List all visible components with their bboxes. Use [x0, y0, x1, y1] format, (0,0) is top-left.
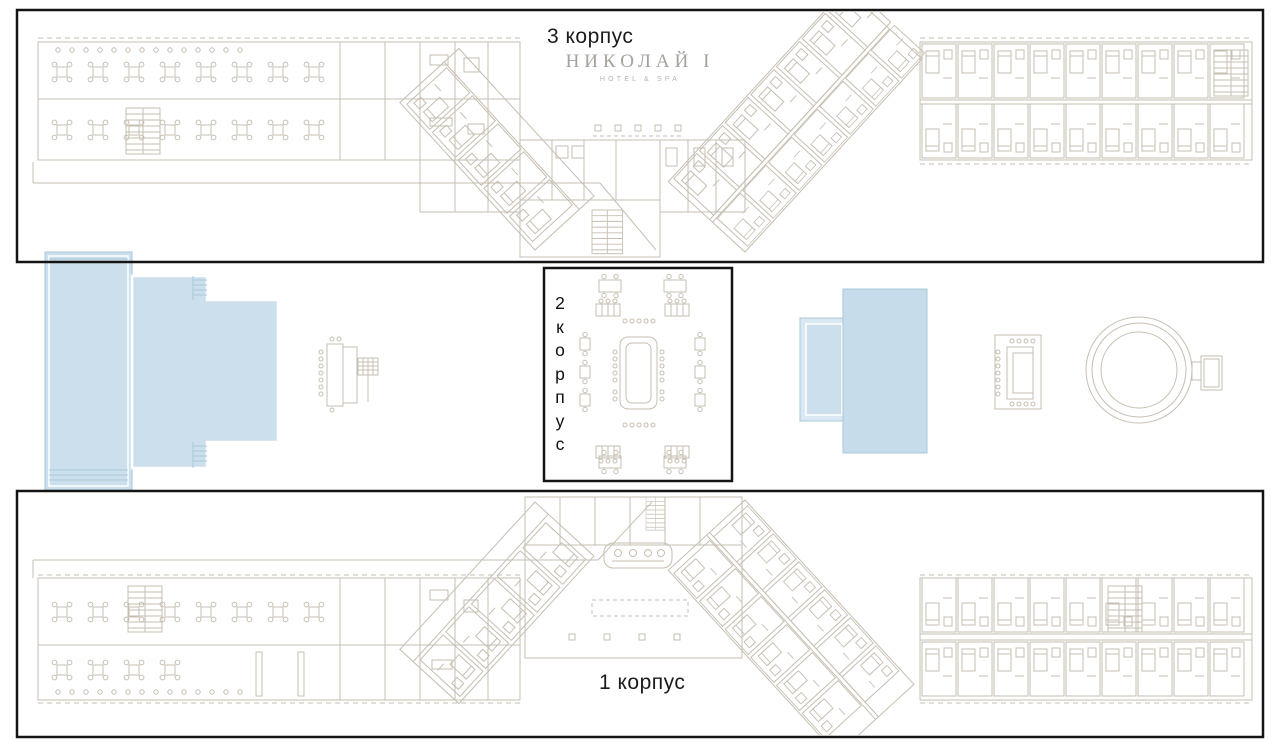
- hotel-logo-name: НИКОЛАЙ I: [540, 51, 740, 73]
- pool-lap: [45, 252, 132, 490]
- building-3-label: 3 корпус: [547, 25, 633, 49]
- building-2-plan: [580, 274, 705, 473]
- hotel-logo: НИКОЛАЙ I HOTEL & SPA: [540, 51, 740, 83]
- pool-main-left: [132, 276, 278, 468]
- building-1-plan: [33, 497, 1252, 745]
- pool-bar-right: [995, 335, 1041, 409]
- building-3-plan: [33, 0, 1252, 257]
- building-2-label: 2 к о р п у с: [548, 292, 572, 457]
- hotel-logo-tagline: HOTEL & SPA: [540, 76, 740, 83]
- site-plan-drawing: [0, 0, 1280, 745]
- pool-bar-left: [319, 337, 378, 412]
- building-3-frame: [17, 10, 1263, 262]
- round-pool: [1086, 317, 1222, 423]
- building-1-label: 1 корпус: [599, 671, 685, 695]
- building-2-frame: [544, 268, 732, 481]
- pool-main-right: [800, 289, 927, 453]
- site-plan-page: 3 корпус НИКОЛАЙ I HOTEL & SPA 2 к о р п…: [0, 0, 1280, 745]
